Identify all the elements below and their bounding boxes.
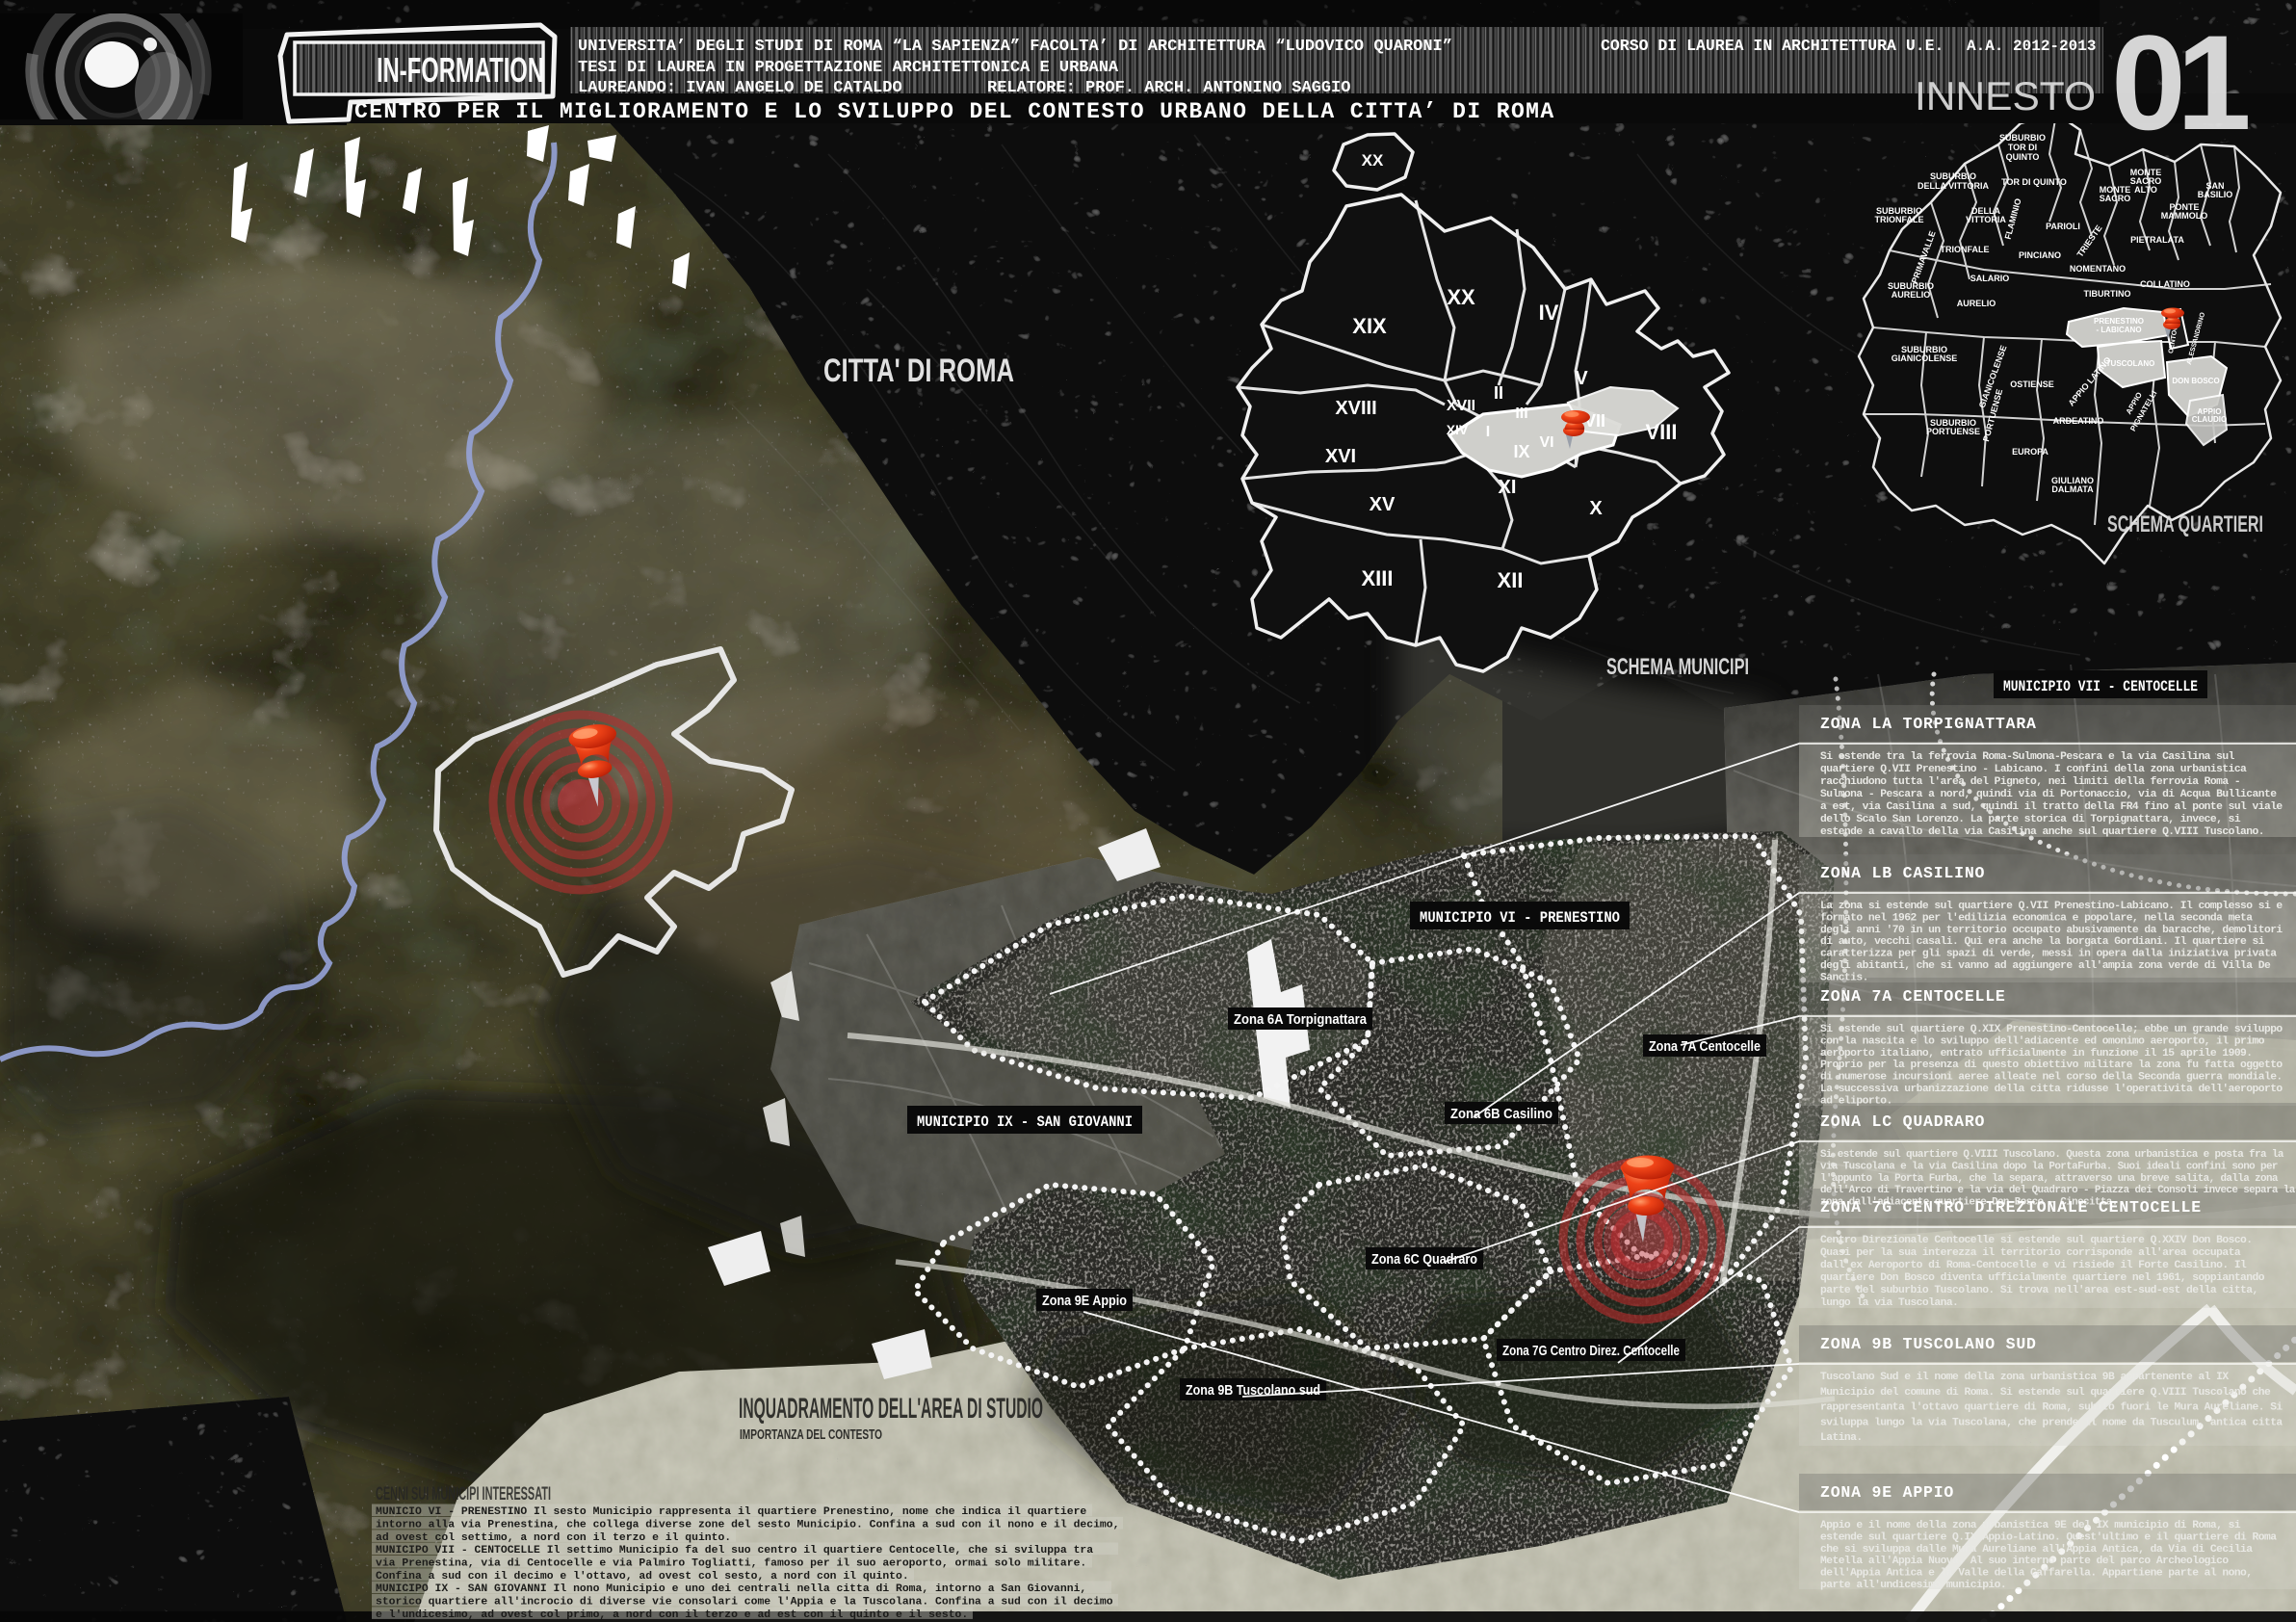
svg-text:XII: XII (1498, 568, 1524, 592)
svg-text:ZONA LC QUADRARO: ZONA LC QUADRARO (1820, 1112, 1985, 1131)
svg-text:CITTA' DI ROMA: CITTA' DI ROMA (823, 353, 1014, 389)
svg-text:IX: IX (1513, 442, 1529, 461)
svg-text:V: V (1575, 368, 1588, 389)
svg-text:MUNICIPIO IX - SAN GIOVANNI: MUNICIPIO IX - SAN GIOVANNI (917, 1113, 1133, 1131)
svg-text:La zona si estende sul quartie: La zona si estende sul quartiere Q.VII P… (1820, 901, 2283, 983)
svg-text:PARIOLI: PARIOLI (2046, 222, 2080, 231)
svg-text:MUNICIPIO VII - CENTOCELLE: MUNICIPIO VII - CENTOCELLE (2003, 678, 2198, 695)
svg-text:CENTRO PER IL MIGLIORAMENTO E: CENTRO PER IL MIGLIORAMENTO E LO SVILUPP… (354, 99, 1555, 124)
svg-text:VI: VI (1539, 434, 1553, 451)
svg-text:SCHEMA QUARTIERI: SCHEMA QUARTIERI (2107, 511, 2263, 537)
svg-text:IV: IV (1539, 301, 1559, 325)
svg-text:I: I (1486, 424, 1490, 440)
svg-text:ZONA LB CASILINO: ZONA LB CASILINO (1820, 864, 1985, 882)
svg-text:XI: XI (1499, 477, 1517, 498)
svg-text:UNIVERSITA’ DEGLI STUDI DI ROM: UNIVERSITA’ DEGLI STUDI DI ROMA “LA SAPI… (578, 38, 1452, 56)
svg-text:SUBURBIO: SUBURBIO (1930, 171, 1976, 181)
svg-text:MAMMOLO: MAMMOLO (2161, 211, 2208, 221)
svg-text:XIX: XIX (1352, 314, 1387, 338)
svg-text:XVIII: XVIII (1335, 398, 1376, 419)
svg-text:EUROPA: EUROPA (2012, 447, 2048, 457)
svg-text:XIII: XIII (1361, 566, 1393, 590)
svg-text:TESI DI LAUREA IN PROGETTAZION: TESI DI LAUREA IN PROGETTAZIONE ARCHITET… (578, 59, 1119, 77)
svg-text:XVII: XVII (1447, 398, 1475, 414)
svg-text:TUSCOLANO: TUSCOLANO (2106, 359, 2155, 368)
svg-text:- LABICANO: - LABICANO (2096, 326, 2141, 334)
svg-text:XX: XX (1447, 285, 1475, 309)
svg-text:DON BOSCO: DON BOSCO (2172, 377, 2219, 385)
svg-text:XVI: XVI (1325, 446, 1356, 467)
svg-text:SUBURBIO: SUBURBIO (1999, 133, 2046, 143)
svg-text:Zona 6A Torpignattara: Zona 6A Torpignattara (1234, 1011, 1368, 1028)
svg-text:GIANICOLENSE: GIANICOLENSE (1892, 353, 1958, 363)
svg-text:TOR DI: TOR DI (2008, 143, 2037, 152)
svg-text:SACRO: SACRO (2100, 194, 2131, 203)
svg-text:NOMENTANO: NOMENTANO (2070, 264, 2126, 274)
svg-text:IMPORTANZA DEL CONTESTO: IMPORTANZA DEL CONTESTO (740, 1427, 882, 1443)
svg-text:01: 01 (2111, 7, 2248, 158)
svg-text:DALMATA: DALMATA (2051, 484, 2094, 494)
svg-text:III: III (1515, 405, 1527, 422)
svg-text:Zona 6B Casilino: Zona 6B Casilino (1450, 1106, 1552, 1122)
svg-text:INNESTO: INNESTO (1915, 73, 2096, 118)
svg-text:Zona 6C Quadraro: Zona 6C Quadraro (1371, 1251, 1477, 1268)
svg-text:AURELIO: AURELIO (1957, 299, 1996, 308)
svg-text:ALTO: ALTO (2134, 185, 2157, 195)
svg-text:VIII: VIII (1645, 420, 1677, 444)
svg-text:IN-FORMATION: IN-FORMATION (377, 50, 544, 90)
svg-text:CORSO DI LAUREA IN ARCHITETTUR: CORSO DI LAUREA IN ARCHITETTURA U.E. (1601, 37, 1944, 55)
svg-text:PIETRALATA: PIETRALATA (2130, 235, 2184, 245)
svg-text:II: II (1494, 383, 1503, 403)
svg-text:Zona 7A Centocelle: Zona 7A Centocelle (1649, 1038, 1761, 1055)
svg-text:TRIONFALE: TRIONFALE (1941, 245, 1990, 254)
svg-text:SALARIO: SALARIO (1970, 274, 2010, 283)
svg-text:Si estende sul quartiere Q.XIX: Si estende sul quartiere Q.XIX Prenestin… (1820, 1024, 2283, 1107)
svg-text:A.A. 2012-2013: A.A. 2012-2013 (1967, 38, 2096, 55)
svg-text:Si estende tra la ferrovia Rom: Si estende tra la ferrovia Roma-Sulmona-… (1820, 751, 2283, 838)
svg-text:CENNI SUI MUNICIPI INTERESSATI: CENNI SUI MUNICIPI INTERESSATI (376, 1484, 551, 1504)
svg-text:ZONA 7A CENTOCELLE: ZONA 7A CENTOCELLE (1820, 987, 2006, 1006)
svg-text:VITTORIA: VITTORIA (1966, 215, 2006, 224)
svg-text:TOR DI QUINTO: TOR DI QUINTO (2001, 177, 2067, 187)
svg-text:SCHEMA MUNICIPI: SCHEMA MUNICIPI (1606, 654, 1749, 680)
svg-text:QUINTO: QUINTO (2006, 152, 2040, 162)
svg-text:TRIONFALE: TRIONFALE (1875, 215, 1924, 224)
svg-text:TIBURTINO: TIBURTINO (2084, 289, 2131, 299)
svg-text:XV: XV (1370, 494, 1396, 515)
svg-text:PINCIANO: PINCIANO (2019, 250, 2061, 260)
svg-text:XIV: XIV (1447, 422, 1469, 437)
svg-text:ZONA 7G CENTRO DIREZIONALE CE: ZONA 7G CENTRO DIREZIONALE CENTOCELLE (1820, 1198, 2202, 1216)
svg-text:OSTIENSE: OSTIENSE (2010, 379, 2054, 389)
svg-text:CLAUDIO: CLAUDIO (2192, 415, 2227, 424)
svg-text:MUNICIPIO VI - PRENESTINO: MUNICIPIO VI - PRENESTINO (1420, 909, 1620, 927)
svg-text:Zona 7G Centro Direz. Centocel: Zona 7G Centro Direz. Centocelle (1502, 1343, 1680, 1359)
svg-text:X: X (1589, 498, 1603, 519)
svg-text:ARDEATINO: ARDEATINO (2053, 416, 2104, 426)
svg-text:ZONA LA TORPIGNATTARA: ZONA LA TORPIGNATTARA (1820, 715, 2037, 733)
svg-text:BASILIO: BASILIO (2198, 190, 2233, 199)
svg-text:COLLATINO: COLLATINO (2140, 279, 2190, 289)
svg-text:DELLA VITTORIA: DELLA VITTORIA (1918, 181, 1990, 191)
svg-text:ZONA 9E APPIO: ZONA 9E APPIO (1820, 1483, 1954, 1502)
svg-text:INQUADRAMENTO DELL'AREA DI STU: INQUADRAMENTO DELL'AREA DI STUDIO (739, 1393, 1043, 1425)
svg-text:PRENESTINO: PRENESTINO (2094, 317, 2144, 326)
svg-text:XX: XX (1362, 151, 1384, 170)
svg-text:ZONA 9B TUSCOLANO SUD: ZONA 9B TUSCOLANO SUD (1820, 1335, 2037, 1353)
svg-text:PORTUENSE: PORTUENSE (1926, 427, 1980, 436)
svg-text:Zona 9E Appio: Zona 9E Appio (1042, 1293, 1127, 1309)
svg-text:AURELIO: AURELIO (1892, 290, 1931, 300)
